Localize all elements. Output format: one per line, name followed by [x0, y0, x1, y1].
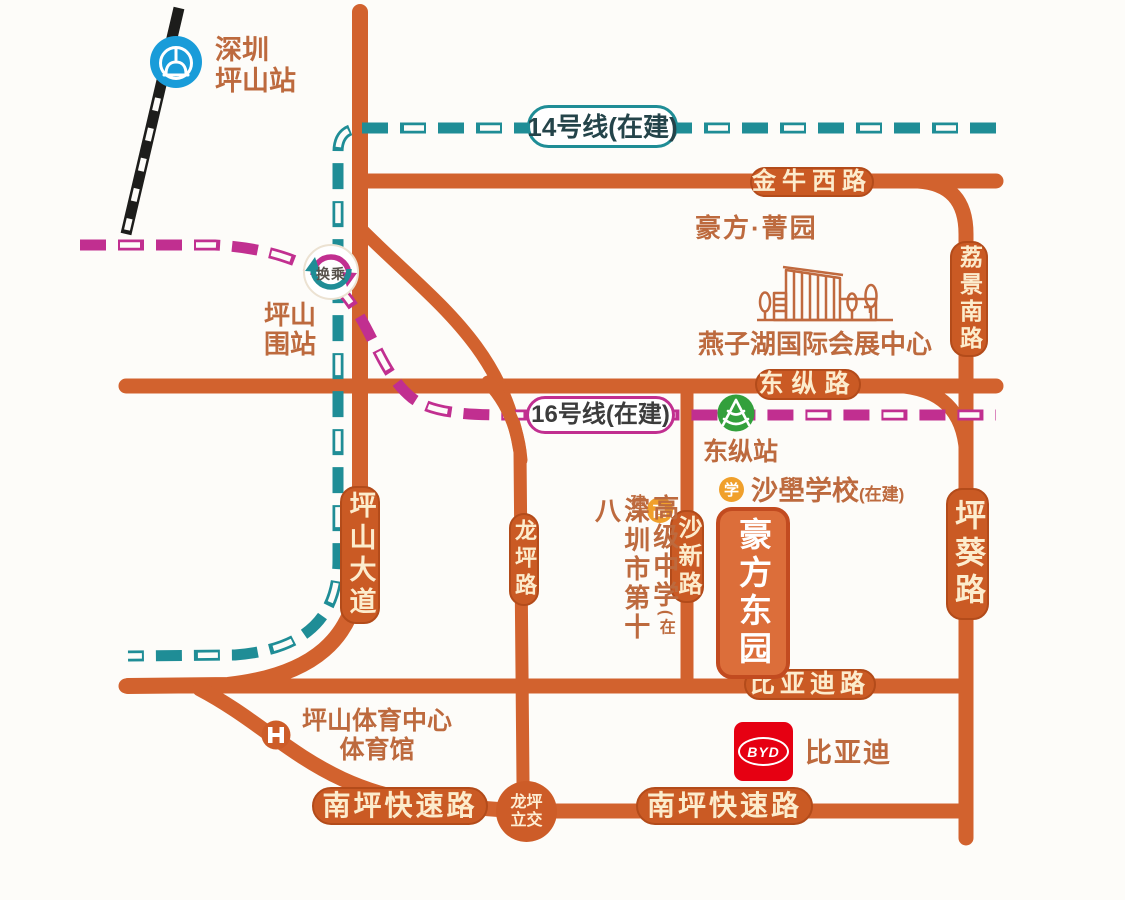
place-shaxue-school: 沙壆学校(在建)	[751, 476, 904, 507]
place-sports-center: 坪山体育中心 体育馆	[296, 707, 458, 765]
road-label-jinniu-west: 金牛西路	[750, 167, 874, 197]
place-no18-school-col2: 深圳市第十八	[591, 497, 650, 657]
project-name: 豪方东园	[737, 517, 770, 669]
byd-logo-text: BYD	[738, 737, 789, 766]
station-shenzhen-pingshan-line1: 深圳	[215, 35, 296, 66]
road-label-lijing-south: 荔景南路	[950, 241, 988, 357]
place-haofang-jingyuan: 豪方·菁园	[695, 214, 818, 243]
location-map: 金牛西路 东纵路 比亚迪路 南坪快速路 南坪快速路 荔景南路 坪葵路 坪山大道 …	[0, 0, 1125, 900]
sports-center-line2: 体育馆	[296, 736, 458, 765]
china-railway-logo	[150, 36, 202, 88]
line14-label: 14号线(在建)	[527, 105, 678, 148]
road-label-pingkui: 坪葵路	[946, 488, 989, 620]
station-shenzhen-pingshan-label: 深圳 坪山站	[215, 35, 296, 97]
road-pingshan-avenue-path	[128, 12, 360, 686]
road-longping-overpass	[488, 382, 521, 460]
convention-center-icon	[757, 267, 893, 320]
longping-interchange: 龙坪 立交	[496, 781, 557, 842]
school-badge-xue: 学	[719, 477, 744, 502]
shaxue-school-status: (在建)	[859, 485, 904, 504]
station-shenzhen-pingshan-line2: 坪山站	[215, 66, 296, 97]
shaxue-school-name: 沙壆学校	[751, 476, 859, 506]
shenzhen-metro-logo	[718, 395, 755, 432]
interchange-line2: 立交	[510, 812, 542, 830]
road-label-dongzong: 东纵路	[755, 369, 861, 400]
station-pingshanwei-line2: 围站	[264, 330, 316, 359]
road-longping-diagonal-path	[362, 230, 523, 782]
road-label-longping: 龙坪路	[509, 513, 539, 606]
no18-school-name-part1: 高级中学	[650, 494, 680, 610]
road-label-pingshan-avenue: 坪山大道	[340, 486, 380, 624]
line16-label: 16号线(在建)	[526, 396, 675, 434]
station-pingshanwei-label: 坪山 围站	[264, 301, 316, 359]
sports-center-line1: 坪山体育中心	[296, 707, 458, 736]
place-byd: 比亚迪	[805, 738, 892, 769]
dumbbell-icon	[262, 721, 291, 750]
place-yanzihu-center: 燕子湖国际会展中心	[698, 330, 932, 359]
station-dongzong-label: 东纵站	[703, 438, 778, 466]
station-pingshanwei-line1: 坪山	[264, 301, 316, 330]
interchange-line1: 龙坪	[510, 794, 542, 812]
byd-logo: BYD	[734, 722, 793, 781]
road-label-nanping-east: 南坪快速路	[636, 787, 813, 825]
transfer-label: 换乘	[305, 264, 357, 284]
project-haofang-dongyuan: 豪方东园	[716, 507, 790, 679]
road-label-nanping-west: 南坪快速路	[312, 787, 488, 825]
